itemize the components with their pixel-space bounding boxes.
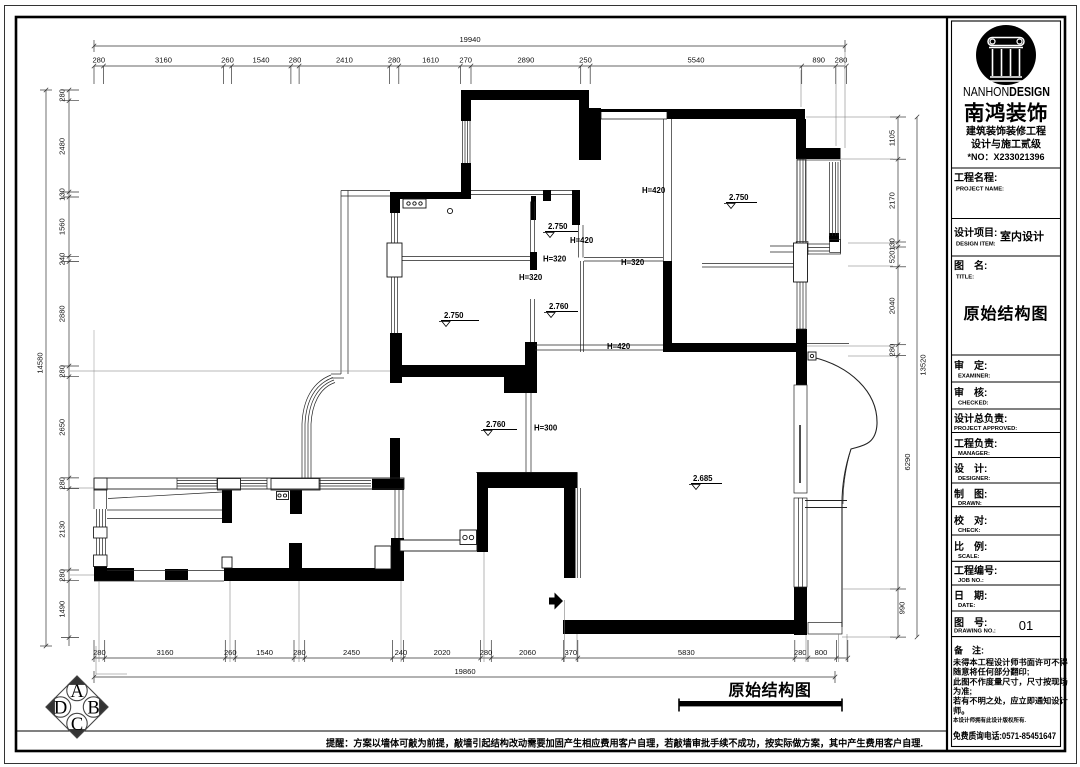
svg-text:若有不明之处，应立即通知设计: 若有不明之处，应立即通知设计	[952, 696, 1068, 706]
svg-text:1540: 1540	[256, 648, 273, 657]
svg-text:H=320: H=320	[621, 258, 645, 267]
svg-text:DATE:: DATE:	[958, 603, 975, 609]
svg-text:H=420: H=420	[570, 236, 594, 245]
svg-text:H=420: H=420	[642, 186, 666, 195]
svg-text:工程负责:: 工程负责:	[954, 437, 997, 450]
svg-text:370: 370	[564, 648, 577, 657]
svg-text:280: 280	[58, 365, 67, 378]
svg-text:800: 800	[815, 648, 828, 657]
svg-text:2020: 2020	[434, 648, 451, 657]
svg-text:280: 280	[93, 648, 106, 657]
svg-text:280: 280	[835, 56, 848, 65]
svg-text:比 例:: 比 例:	[954, 540, 987, 553]
svg-text:本设计师拥有此设计版权所有.: 本设计师拥有此设计版权所有.	[953, 716, 1027, 724]
svg-text:2880: 2880	[58, 305, 67, 322]
svg-text:南鸿装饰: 南鸿装饰	[964, 101, 1048, 125]
svg-text:260: 260	[224, 648, 237, 657]
svg-text:280: 280	[58, 477, 67, 490]
svg-text:6290: 6290	[903, 454, 912, 471]
svg-text:日 期:: 日 期:	[954, 589, 987, 602]
svg-text:审 定:: 审 定:	[954, 359, 987, 372]
svg-text:520: 520	[888, 251, 897, 264]
svg-text:H=420: H=420	[607, 342, 631, 351]
svg-text:C: C	[71, 715, 83, 735]
svg-text:DESIGN ITEM:: DESIGN ITEM:	[956, 242, 996, 248]
svg-text:19860: 19860	[454, 667, 475, 676]
svg-text:DRAWING NO.:: DRAWING NO.:	[954, 629, 996, 635]
svg-text:图 名:: 图 名:	[954, 259, 987, 272]
svg-text:2.750: 2.750	[548, 222, 568, 231]
svg-text:2.750: 2.750	[444, 311, 464, 320]
svg-text:130: 130	[58, 188, 67, 201]
svg-text:D: D	[54, 699, 67, 719]
svg-text:随意将任何部分翻印;: 随意将任何部分翻印;	[953, 667, 1029, 677]
svg-text:2060: 2060	[519, 648, 536, 657]
svg-text:2.685: 2.685	[693, 474, 713, 483]
svg-text:建筑装饰装修工程: 建筑装饰装修工程	[965, 125, 1046, 138]
svg-text:2890: 2890	[517, 56, 534, 65]
svg-text:270: 270	[459, 56, 472, 65]
svg-text:2.750: 2.750	[729, 193, 749, 202]
svg-text:设计总负责:: 设计总负责:	[954, 412, 1007, 425]
svg-text:280: 280	[794, 648, 807, 657]
svg-text:2040: 2040	[888, 297, 897, 314]
svg-text:280: 280	[293, 648, 306, 657]
svg-text:制 图:: 制 图:	[954, 488, 987, 501]
svg-text:990: 990	[898, 602, 907, 615]
svg-text:250: 250	[579, 56, 592, 65]
svg-text:备 注:: 备 注:	[953, 645, 984, 656]
svg-text:260: 260	[221, 56, 234, 65]
svg-text:2.760: 2.760	[486, 420, 506, 429]
svg-text:890: 890	[812, 56, 825, 65]
svg-text:师。: 师。	[953, 706, 969, 716]
svg-text:CHECK:: CHECK:	[958, 528, 981, 534]
svg-text:NANHONDESIGN: NANHONDESIGN	[963, 85, 1050, 99]
svg-text:280: 280	[888, 344, 897, 357]
svg-text:JOB NO.:: JOB NO.:	[958, 578, 984, 584]
svg-text:280: 280	[58, 89, 67, 102]
svg-text:A: A	[70, 682, 84, 702]
svg-text:设计项目:: 设计项目:	[954, 226, 997, 239]
svg-text:CHECKED:: CHECKED:	[958, 401, 989, 407]
svg-text:1560: 1560	[58, 218, 67, 235]
svg-text:*NO：X233021396: *NO：X233021396	[967, 152, 1044, 162]
svg-text:EXAMINER:: EXAMINER:	[958, 374, 991, 380]
svg-text:130: 130	[888, 238, 897, 251]
svg-text:未得本工程设计师书面许可不得: 未得本工程设计师书面许可不得	[952, 657, 1068, 667]
svg-text:1105: 1105	[888, 130, 897, 146]
svg-text:2650: 2650	[58, 419, 67, 436]
svg-text:280: 280	[92, 56, 105, 65]
svg-text:工程名程:: 工程名程:	[954, 171, 997, 184]
svg-text:3160: 3160	[155, 56, 172, 65]
svg-text:5830: 5830	[678, 648, 695, 657]
svg-text:19940: 19940	[459, 35, 480, 44]
svg-text:H=320: H=320	[543, 255, 567, 264]
svg-text:原始结构图: 原始结构图	[728, 681, 811, 700]
svg-text:1490: 1490	[58, 601, 67, 618]
svg-text:280: 280	[388, 56, 401, 65]
svg-text:13520: 13520	[919, 354, 928, 375]
svg-text:图 号:: 图 号:	[954, 617, 987, 629]
svg-text:H=320: H=320	[519, 273, 543, 282]
svg-text:设计与施工贰级: 设计与施工贰级	[971, 138, 1042, 151]
svg-text:为准;: 为准;	[953, 686, 972, 696]
svg-text:B: B	[87, 699, 99, 719]
svg-text:MANAGER:: MANAGER:	[958, 451, 990, 457]
svg-text:室内设计: 室内设计	[1000, 229, 1044, 243]
svg-text:2480: 2480	[58, 138, 67, 155]
svg-text:280: 280	[58, 569, 67, 582]
svg-text:280: 280	[289, 56, 302, 65]
svg-text:原始结构图: 原始结构图	[963, 304, 1048, 323]
svg-text:工程编号:: 工程编号:	[954, 564, 997, 577]
svg-text:2450: 2450	[343, 648, 360, 657]
svg-text:1540: 1540	[253, 56, 270, 65]
svg-text:3160: 3160	[157, 648, 174, 657]
svg-text:免费质询电话:0571-85451647: 免费质询电话:0571-85451647	[953, 730, 1056, 741]
svg-text:1610: 1610	[422, 56, 439, 65]
svg-text:2170: 2170	[888, 192, 897, 209]
svg-text:2410: 2410	[336, 56, 353, 65]
svg-text:PROJECT NAME:: PROJECT NAME:	[956, 187, 1004, 193]
svg-text:PROJECT APPROVED:: PROJECT APPROVED:	[954, 426, 1017, 432]
svg-text:01: 01	[1019, 618, 1033, 633]
svg-text:审 核:: 审 核:	[954, 386, 987, 399]
svg-text:H=300: H=300	[534, 424, 558, 433]
svg-text:280: 280	[480, 648, 493, 657]
svg-text:DESIGNER:: DESIGNER:	[958, 476, 990, 482]
svg-text:此图不作度量尺寸，尺寸按现场: 此图不作度量尺寸，尺寸按现场	[953, 677, 1068, 687]
svg-text:14580: 14580	[36, 352, 45, 373]
svg-text:TITLE:: TITLE:	[956, 275, 974, 281]
svg-text:240: 240	[58, 253, 67, 266]
svg-text:5540: 5540	[688, 56, 705, 65]
svg-text:2130: 2130	[58, 521, 67, 538]
svg-text:设 计:: 设 计:	[954, 462, 987, 475]
svg-text:提醒：方案以墙体可敲为前提，敲墙引起结构改动需要加固产生相应: 提醒：方案以墙体可敲为前提，敲墙引起结构改动需要加固产生相应费用客户自理，若敲墙…	[326, 737, 923, 750]
svg-text:SCALE:: SCALE:	[958, 554, 980, 560]
svg-text:校 对:: 校 对:	[954, 514, 987, 527]
svg-text:DRAWN:: DRAWN:	[958, 501, 982, 507]
svg-text:2.760: 2.760	[549, 302, 569, 311]
